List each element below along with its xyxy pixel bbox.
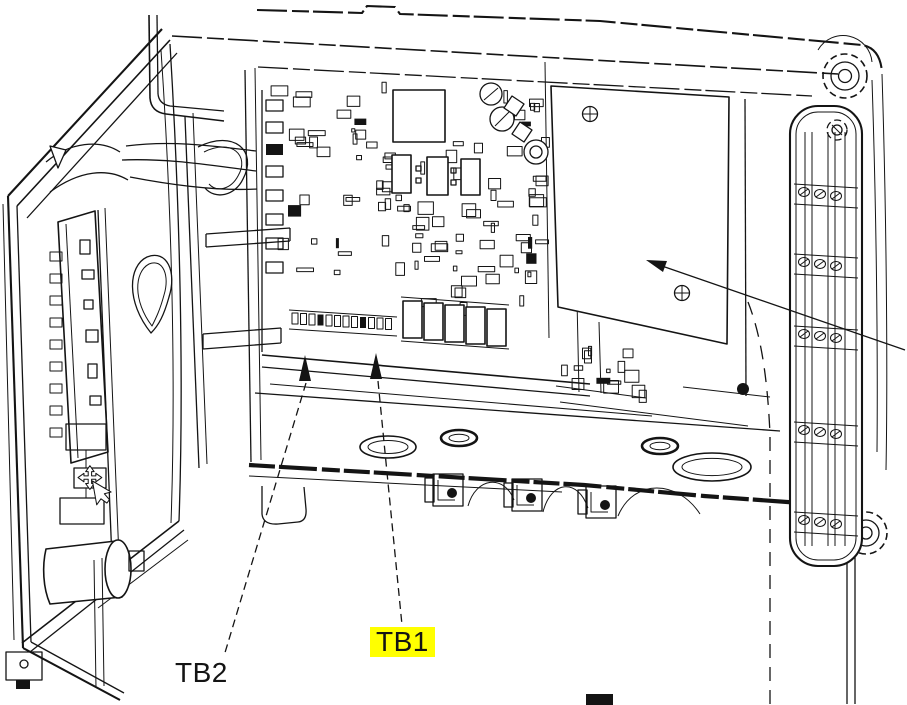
figure-canvas: TB2 TB1 <box>0 0 907 705</box>
label-tb1-highlight: TB1 <box>370 627 435 657</box>
pcb-edge-connectors <box>266 100 283 273</box>
enclosure-illustration <box>0 0 907 705</box>
terminal-block-tb1 <box>403 301 506 346</box>
tb2-leader-arrow <box>224 355 311 656</box>
label-tb2: TB2 <box>175 658 228 688</box>
hinge-rail <box>790 106 862 566</box>
door-assembly <box>3 15 257 700</box>
label-tb1: TB1 <box>370 627 435 657</box>
door-board-connectors <box>50 252 62 437</box>
cover-plate <box>551 86 729 344</box>
